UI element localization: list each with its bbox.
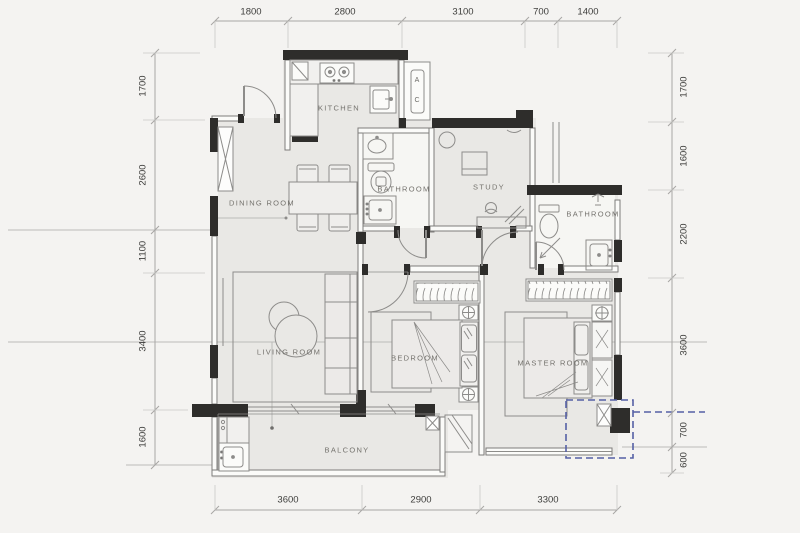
room-label-bathroom-master: BATHROOM (566, 210, 619, 219)
dim-right-3: 3600 (679, 334, 690, 355)
dim-right-0: 1700 (679, 76, 690, 97)
dim-top-0: 1800 (240, 7, 261, 18)
dim-left-0: 1700 (138, 75, 149, 96)
dim-right-5: 600 (679, 452, 690, 468)
room-label-balcony: BALCONY (325, 446, 370, 455)
dim-top-1: 2800 (334, 7, 355, 18)
fridge (292, 62, 308, 80)
dim-right-4: 700 (679, 422, 690, 438)
room-label-master: MASTER ROOM (518, 359, 589, 368)
dim-right-2: 2200 (679, 223, 690, 244)
dim-left-3: 3400 (138, 330, 149, 351)
dim-left-4: 1600 (138, 426, 149, 447)
stove (320, 63, 354, 83)
kitchen-sink (370, 86, 396, 113)
ac-shaft-label: A C (414, 77, 421, 107)
dim-bottom-1: 2900 (410, 495, 431, 506)
dim-top-2: 3100 (452, 7, 473, 18)
ac-platform (445, 415, 472, 452)
room-label-bedroom: BEDROOM (391, 354, 439, 363)
room-label-living: LIVING ROOM (257, 348, 321, 357)
dim-bottom-0: 3600 (277, 495, 298, 506)
dim-right-1: 1600 (679, 145, 690, 166)
dim-left-1: 2600 (138, 164, 149, 185)
floorplan-canvas: KITCHEN DINING ROOM BATHROOM STUDY BATHR… (0, 0, 800, 533)
room-label-study: STUDY (473, 183, 505, 192)
dim-top-4: 1400 (577, 7, 598, 18)
dim-top-3: 700 (533, 7, 549, 18)
bathroom-master-floor (535, 195, 615, 268)
dim-bottom-2: 3300 (537, 495, 558, 506)
dim-left-2: 1100 (138, 241, 149, 261)
room-label-dining: DINING ROOM (229, 199, 295, 208)
room-label-kitchen: KITCHEN (318, 104, 360, 113)
entry-door-arc (244, 86, 276, 118)
room-label-bathroom-small: BATHROOM (377, 185, 430, 194)
